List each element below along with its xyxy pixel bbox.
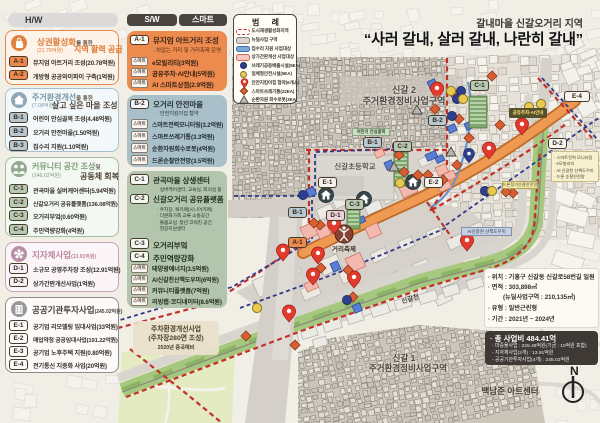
svg-text:N: N (570, 364, 579, 378)
